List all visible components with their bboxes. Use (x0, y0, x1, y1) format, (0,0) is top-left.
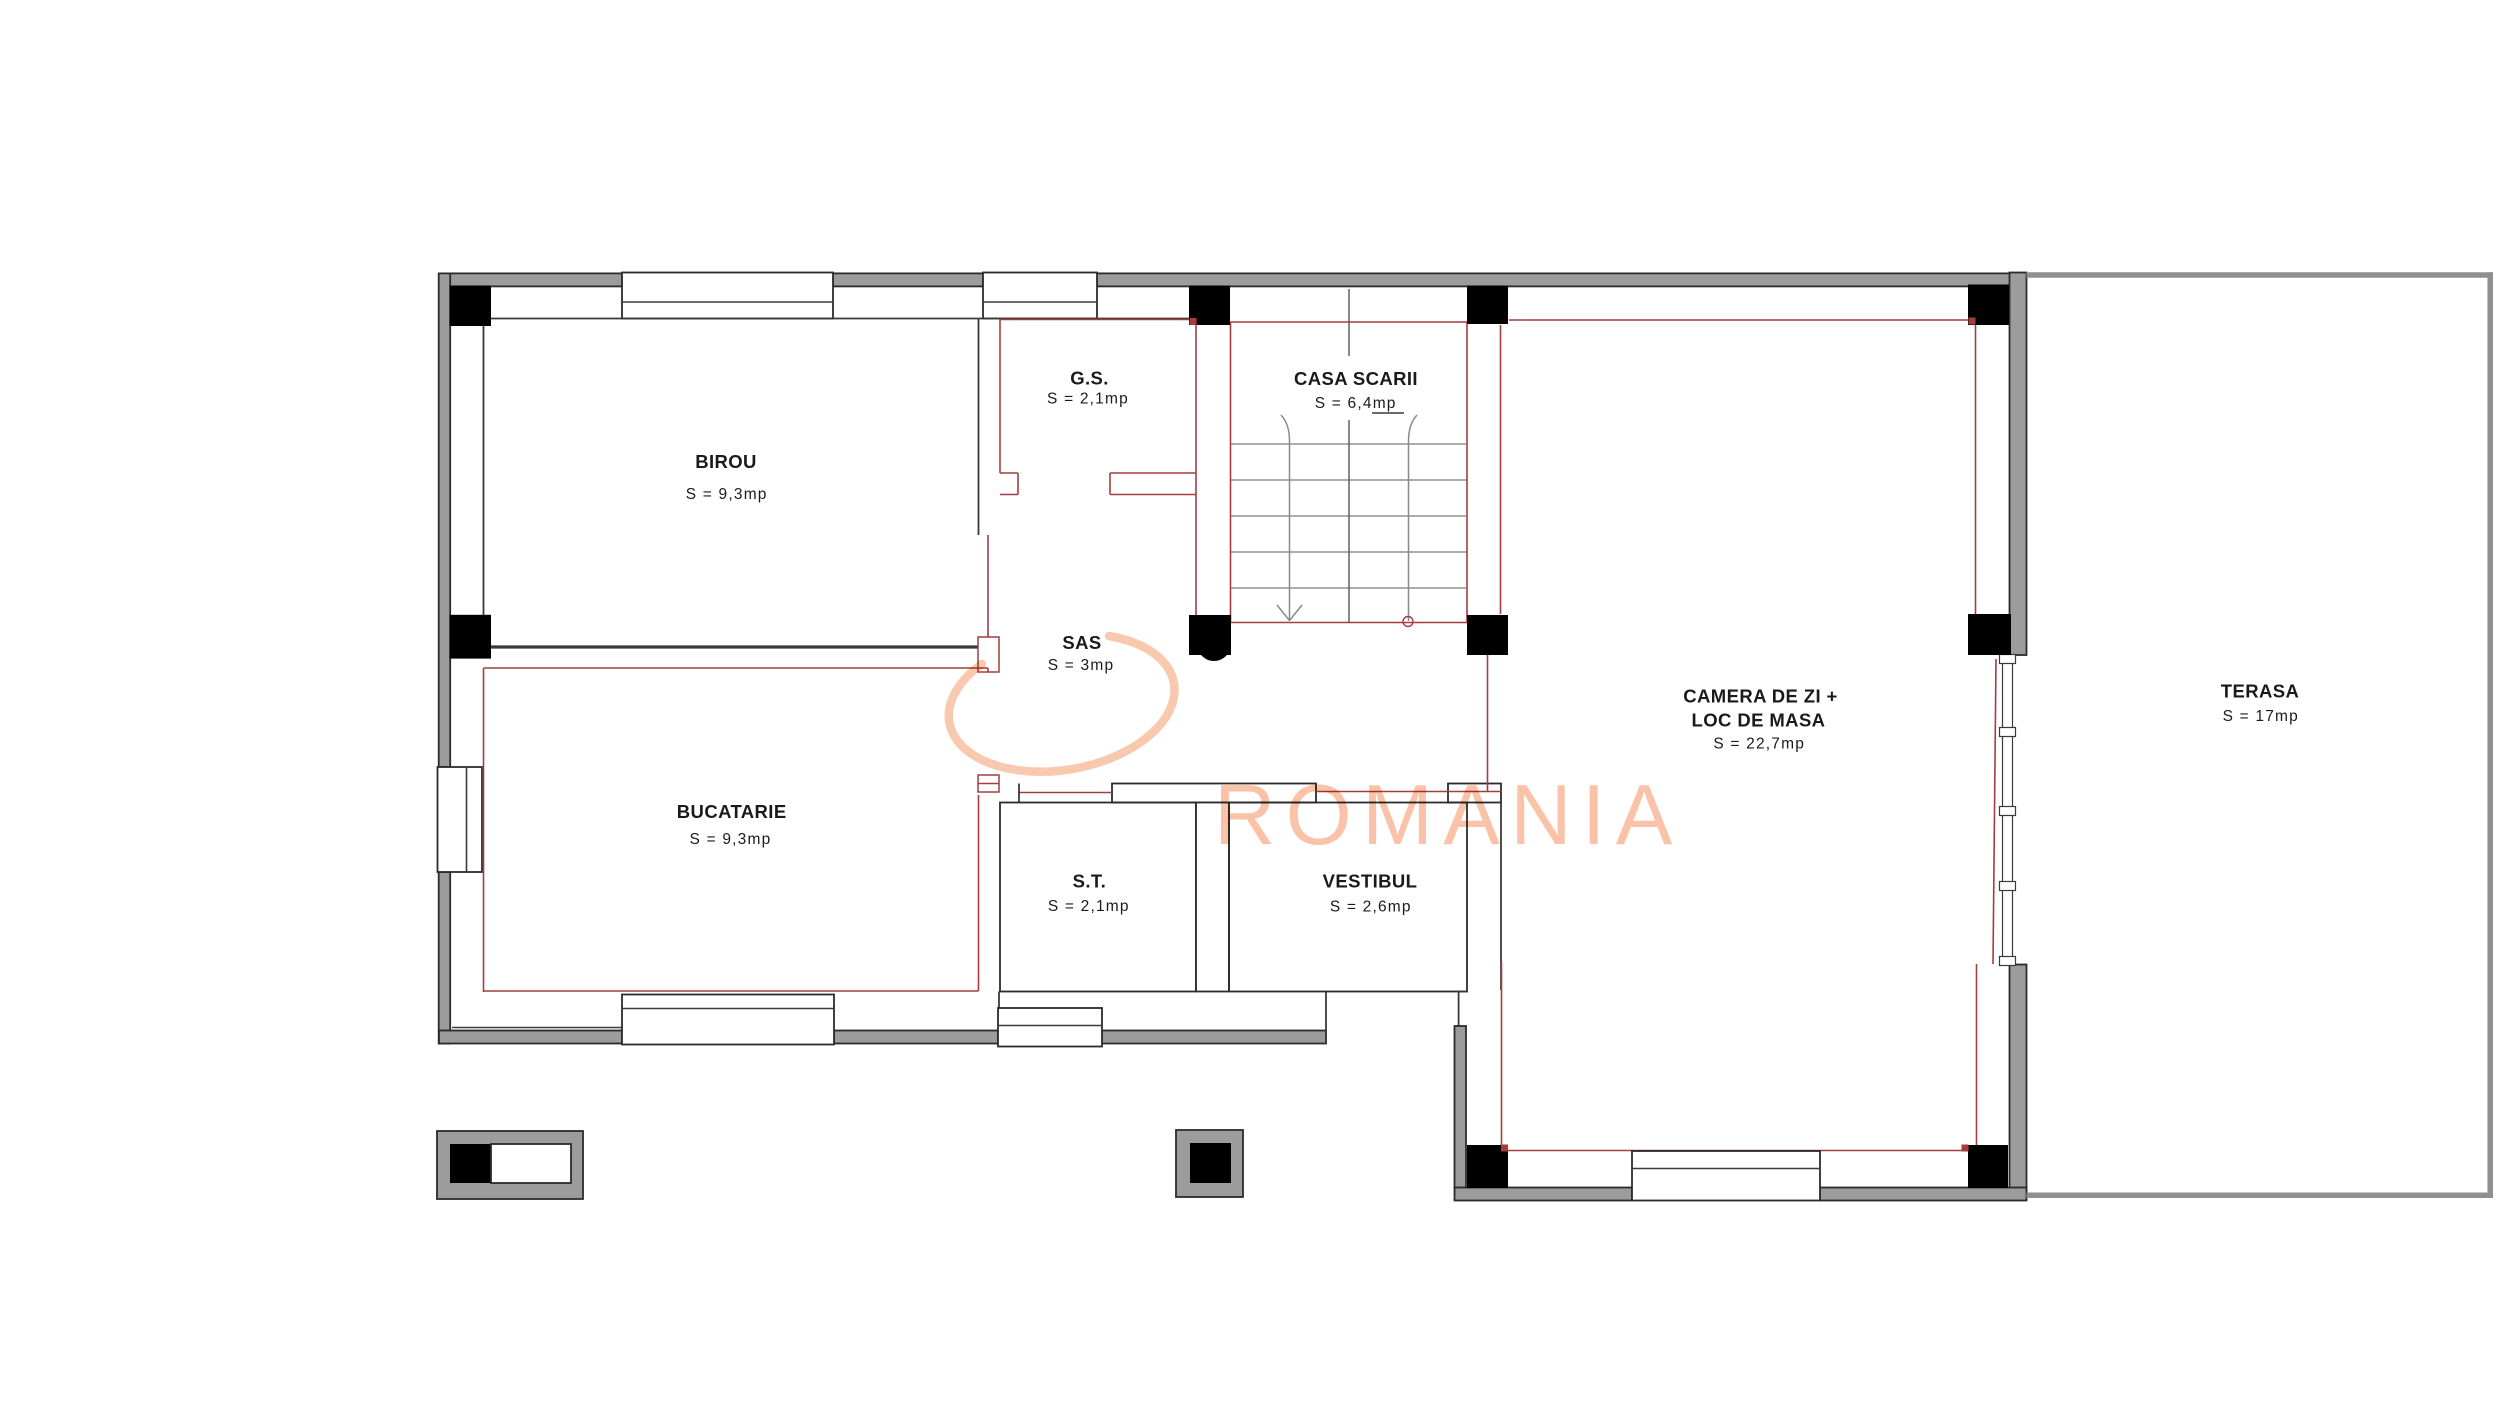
svg-text:S = 9,3mp: S = 9,3mp (686, 486, 768, 503)
svg-text:BIROU: BIROU (695, 451, 757, 472)
svg-text:TERASA: TERASA (2221, 681, 2299, 702)
svg-text:CAMERA DE ZI +: CAMERA DE ZI + (1683, 686, 1837, 707)
svg-text:BUCATARIE: BUCATARIE (677, 801, 787, 822)
svg-text:SAS: SAS (1062, 632, 1101, 653)
svg-text:S = 3mp: S = 3mp (1048, 657, 1115, 674)
svg-text:S = 2,1mp: S = 2,1mp (1048, 898, 1130, 915)
svg-text:S = 6,4mp: S = 6,4mp (1315, 395, 1397, 412)
svg-text:S = 2,6mp: S = 2,6mp (1330, 899, 1412, 916)
svg-text:CASA SCARII: CASA SCARII (1294, 368, 1418, 389)
svg-text:S = 22,7mp: S = 22,7mp (1713, 736, 1805, 753)
svg-text:G.S.: G.S. (1070, 368, 1109, 389)
svg-text:ROMANIA: ROMANIA (1214, 768, 1683, 863)
svg-text:VESTIBUL: VESTIBUL (1323, 870, 1418, 891)
svg-text:S.T.: S.T. (1073, 870, 1106, 891)
svg-text:S = 9,3mp: S = 9,3mp (690, 831, 772, 848)
svg-text:S = 17mp: S = 17mp (2223, 708, 2299, 725)
svg-text:LOC DE MASA: LOC DE MASA (1692, 710, 1826, 731)
svg-text:S = 2,1mp: S = 2,1mp (1047, 391, 1129, 408)
